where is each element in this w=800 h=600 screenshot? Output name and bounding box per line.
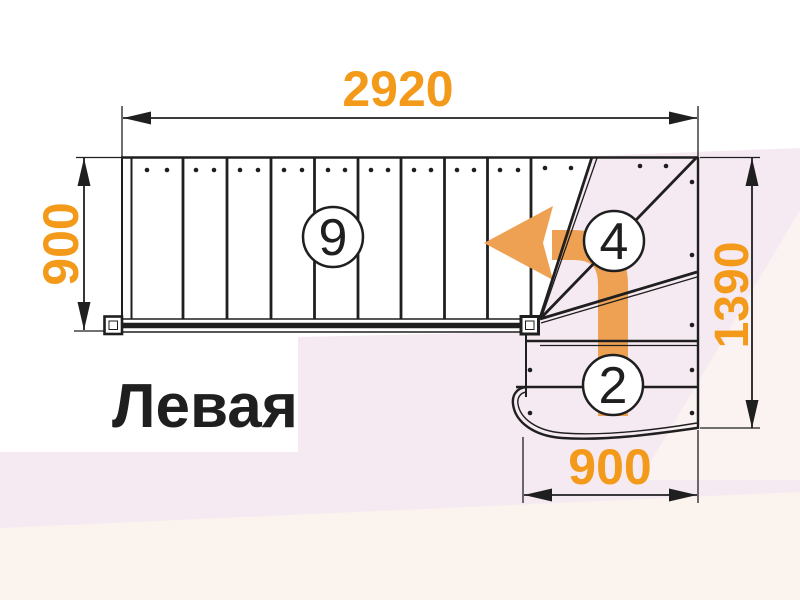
stair-plan-svg: 9 4 2 2920 900 1390 900 Левая bbox=[0, 0, 800, 600]
bottom-flight-count: 2 bbox=[599, 357, 628, 415]
left-newel-post bbox=[105, 317, 123, 335]
dim-label-top: 2920 bbox=[342, 61, 453, 117]
walk-arrow-head bbox=[484, 206, 553, 280]
center-newel-post bbox=[521, 317, 539, 335]
plan-title: Левая bbox=[112, 372, 298, 441]
dim-label-left: 900 bbox=[33, 202, 89, 285]
stair-plan-drawing: 9 4 2 2920 900 1390 900 Левая bbox=[0, 0, 800, 600]
dim-label-right: 1390 bbox=[706, 242, 759, 349]
winder-count: 4 bbox=[600, 213, 629, 271]
dim-label-bottom: 900 bbox=[568, 439, 651, 495]
straight-flight-count: 9 bbox=[319, 209, 348, 267]
